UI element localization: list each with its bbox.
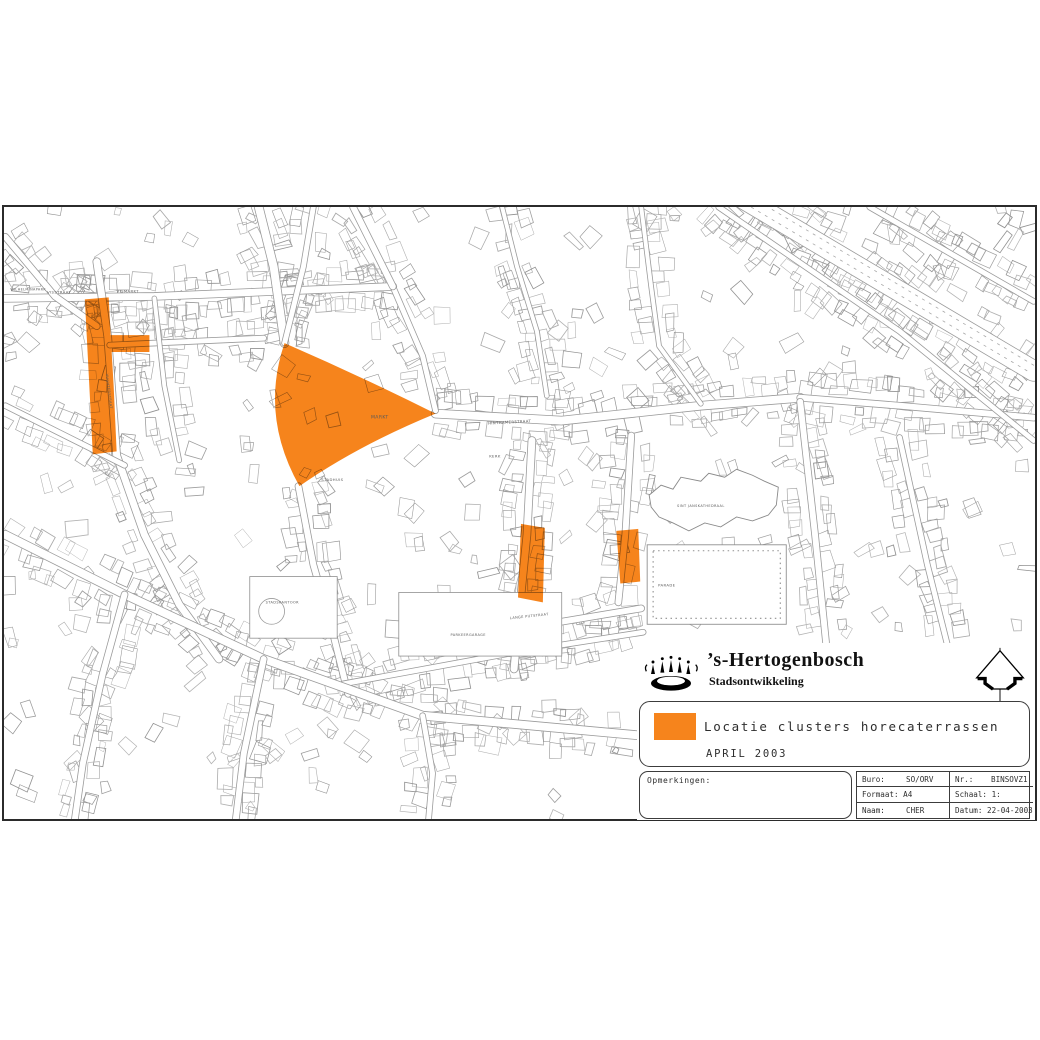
buro-label: Buro: xyxy=(862,775,906,784)
street-label: PARKEERGARAGE xyxy=(450,633,485,637)
street-label: SINT JANSKATHEDRAAL xyxy=(677,504,725,508)
title-panel: ’s-Hertogenbosch Stadsontwikkeling Locat… xyxy=(637,643,1035,820)
titleblock-cell-nr: Nr.: BINSOVZ1 xyxy=(950,772,1033,787)
titleblock-cell-schaal: Schaal: 1: xyxy=(950,787,1033,802)
street-label: VISMARKT xyxy=(117,289,139,293)
logo-row: ’s-Hertogenbosch Stadsontwikkeling xyxy=(637,643,1035,700)
schaal-label: Schaal: xyxy=(955,790,987,799)
street-label: WILHELMINAPARK xyxy=(10,287,46,291)
nr-value: BINSOVZ1 xyxy=(991,775,1028,784)
titleblock-cell-buro: Buro: SO/ORV xyxy=(857,772,950,787)
datum-value: 22-04-2003 xyxy=(987,806,1033,815)
titleblock-cell-formaat: Formaat: A4 xyxy=(857,787,950,802)
schaal-value: 1: xyxy=(992,790,1001,799)
legend-label: Locatie clusters horecaterrassen xyxy=(704,719,999,734)
street-label: VISSTRAAT xyxy=(47,290,71,294)
street-label: KERK xyxy=(489,454,501,458)
highlight-zone-cluster-4 xyxy=(616,529,640,584)
street-label: STADSKANTOOR xyxy=(266,600,299,604)
north-arrow-icon xyxy=(971,647,1029,703)
titleblock-table: Buro: SO/ORV Nr.: BINSOVZ1 Formaat: A4 S… xyxy=(856,771,1030,819)
org-name: ’s-Hertogenbosch xyxy=(707,649,864,672)
formaat-value: A4 xyxy=(903,790,912,799)
street-label: MARKT xyxy=(371,415,389,421)
titleblock-cell-naam: Naam: CHER xyxy=(857,803,950,818)
titleblock-cell-datum: Datum: 22-04-2003 xyxy=(950,803,1033,818)
legend-color-swatch xyxy=(654,713,696,740)
street-label: HINTHAMERSTRAAT xyxy=(488,419,532,425)
shertogenbosch-crown-logo xyxy=(643,647,703,697)
formaat-label: Formaat: xyxy=(862,790,899,799)
legend-box: Locatie clusters horecaterrassen APRIL 2… xyxy=(639,701,1030,767)
remarks-box: Opmerkingen: xyxy=(639,771,852,819)
datum-label: Datum: xyxy=(955,806,982,815)
org-department: Stadsontwikkeling xyxy=(709,674,804,689)
legend-date: APRIL 2003 xyxy=(706,748,787,760)
buro-value: SO/ORV xyxy=(906,775,933,784)
naam-value: CHER xyxy=(906,806,924,815)
street-label: PARADE xyxy=(658,584,676,588)
remarks-label: Opmerkingen: xyxy=(647,776,711,785)
highlight-zone-cluster-3 xyxy=(518,524,545,602)
document-page: WILHELMINAPARKVISSTRAATVISMARKTVUGHTERST… xyxy=(0,0,1040,1040)
nr-label: Nr.: xyxy=(955,775,991,784)
street-label: STADHUIS xyxy=(321,478,343,482)
naam-label: Naam: xyxy=(862,806,906,815)
